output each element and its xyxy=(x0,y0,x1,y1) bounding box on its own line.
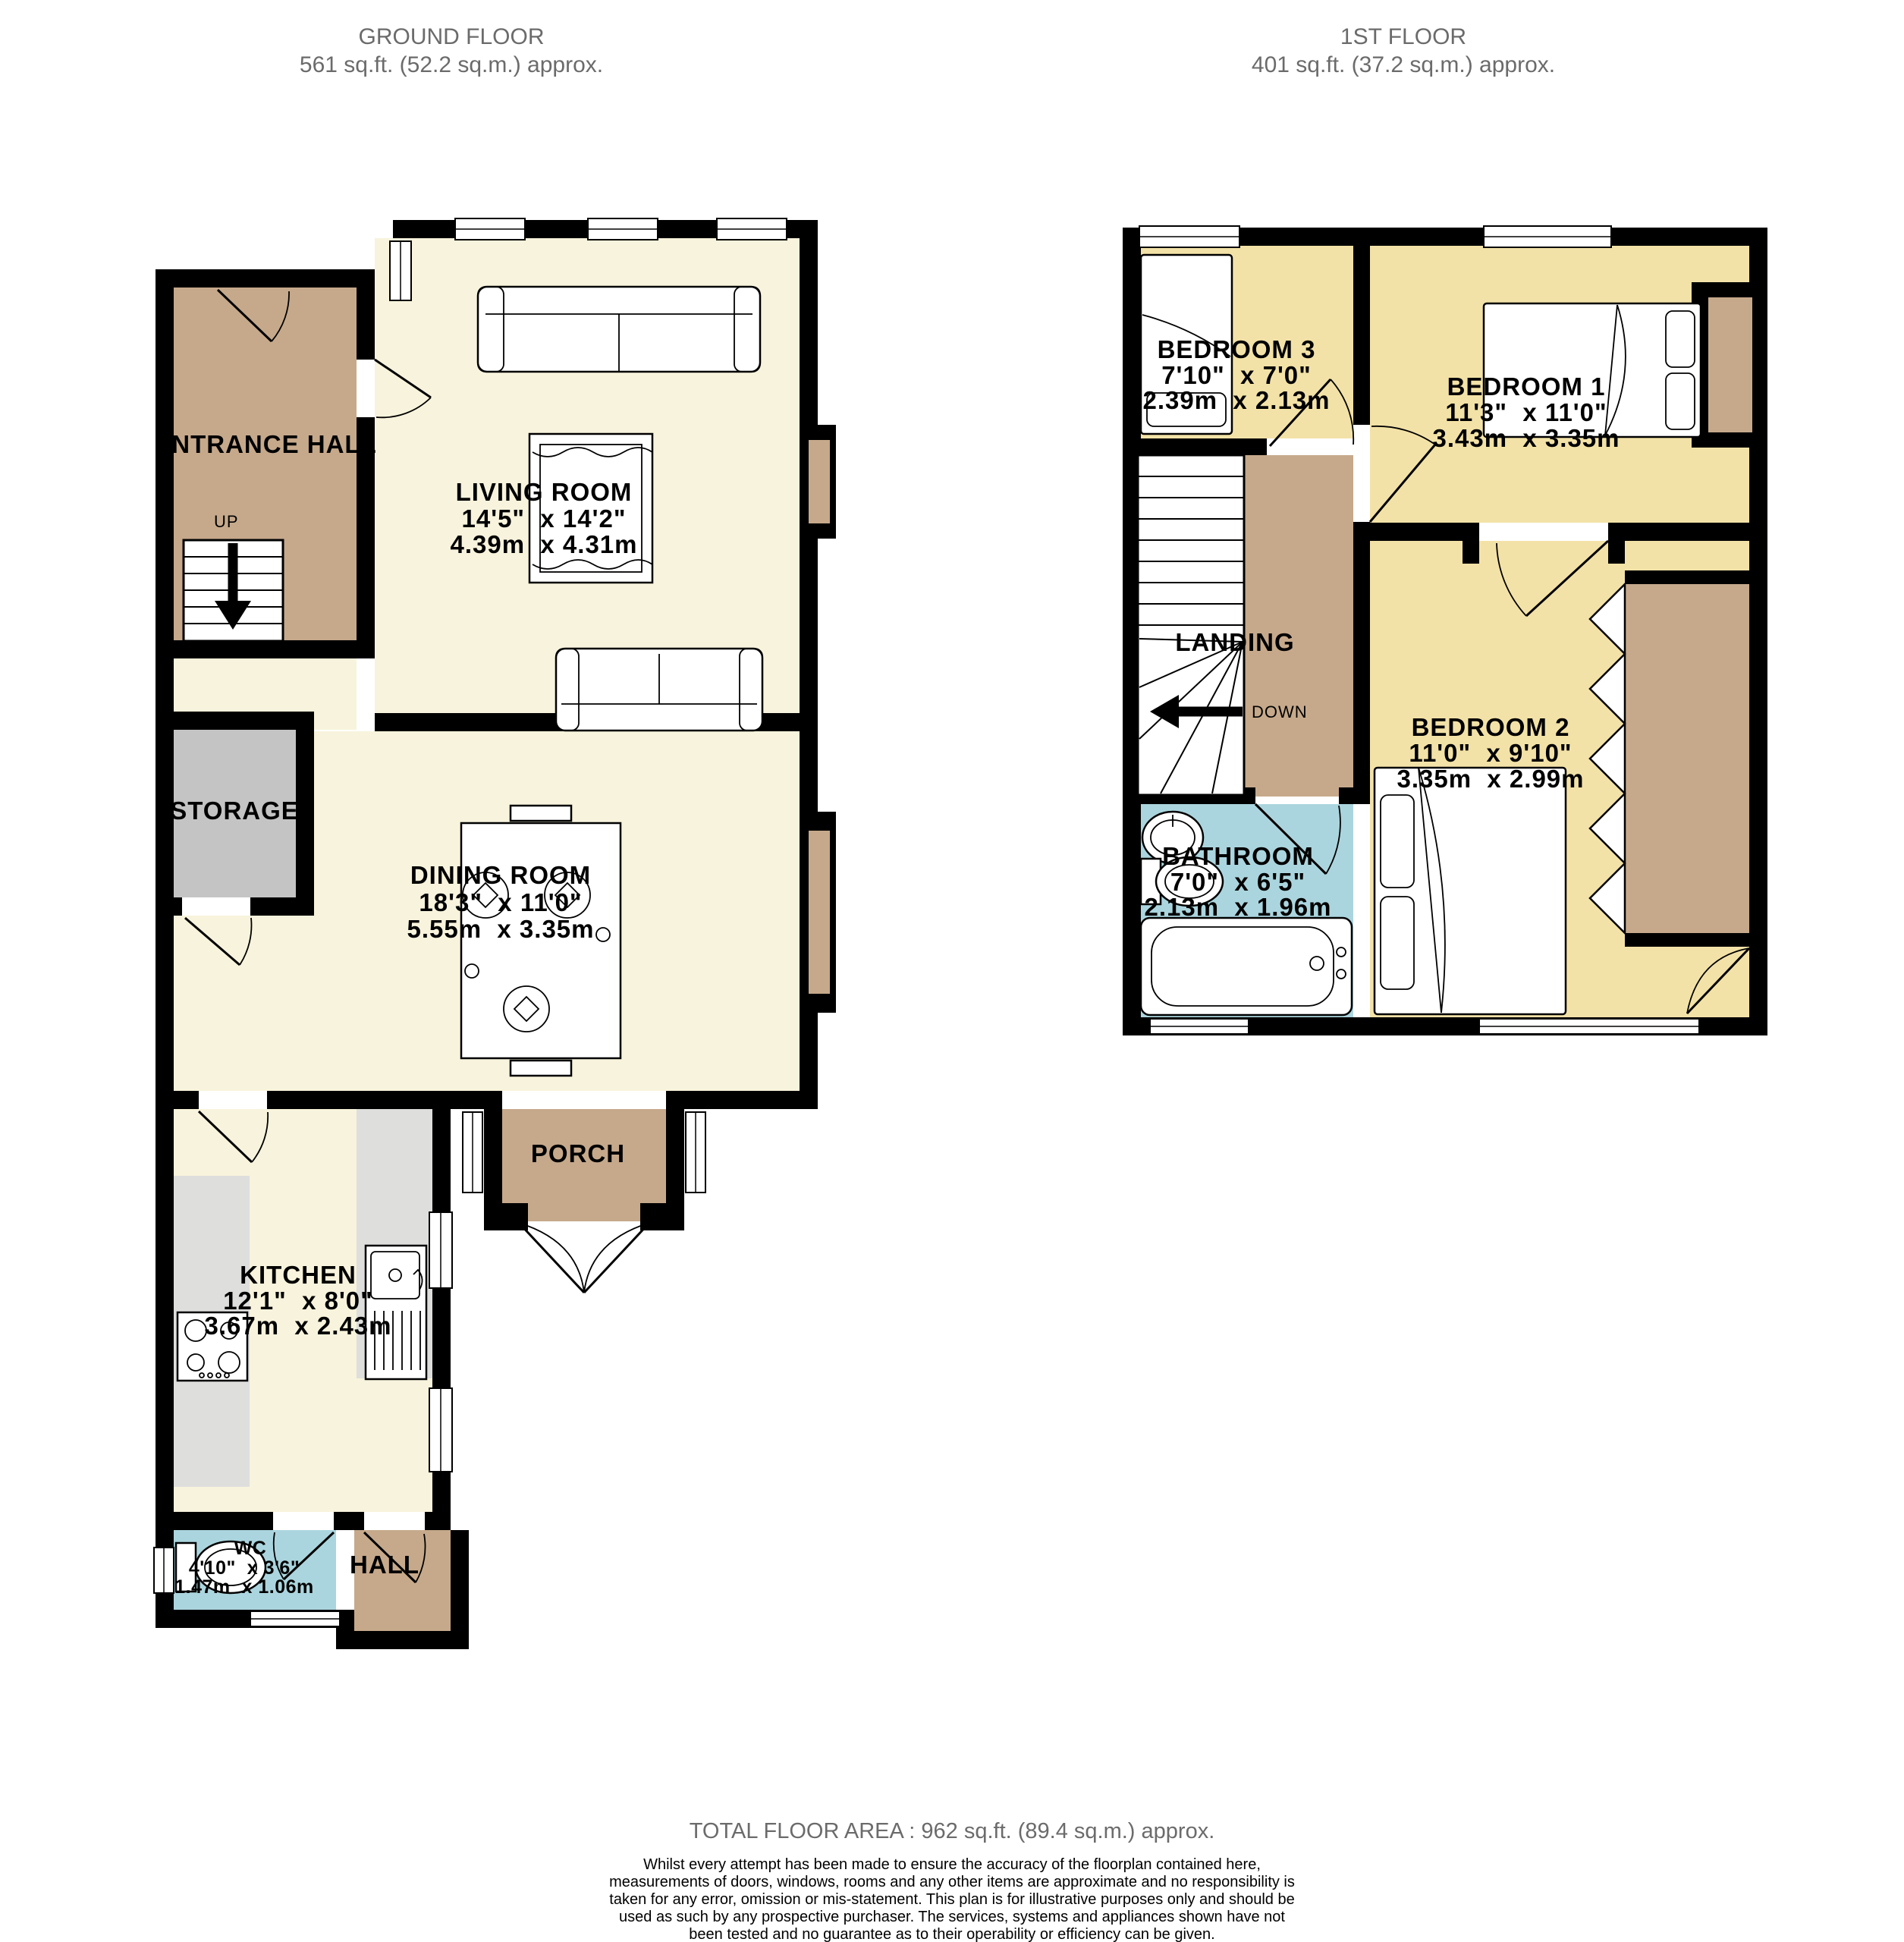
bedroom1-label: BEDROOM 1 xyxy=(1447,372,1606,401)
bedroom3-imperial: 7'10" x 7'0" xyxy=(1161,361,1312,389)
storage-label: STORAGE xyxy=(170,797,299,825)
disclaimer-text: Whilst every attempt has been made to en… xyxy=(609,1856,1296,1942)
bedroom1-builtin-cupboard xyxy=(1692,282,1767,448)
wc-imperial: 4'10" x 3'6" xyxy=(189,1557,300,1579)
first-floor-plan: BEDROOM 3 7'10" x 7'0" 2.39m x 2.13m BED… xyxy=(1123,226,1767,1035)
dining-room-imperial: 18'3" x 11'0" xyxy=(419,888,582,916)
bedroom2-label: BEDROOM 2 xyxy=(1412,713,1570,741)
first-stairs xyxy=(1138,455,1244,795)
bedroom1-imperial: 11'3" x 11'0" xyxy=(1445,398,1607,426)
dining-room-metric: 5.55m x 3.35m xyxy=(407,915,595,943)
bedroom1-metric: 3.43m x 3.35m xyxy=(1433,424,1620,452)
ground-floor-plan: ENTRANCE HALL UP LIVING ROOM 14'5" x 14'… xyxy=(154,218,836,1649)
bedroom2-bed-icon xyxy=(1375,768,1566,1014)
bathroom-metric: 2.13m x 1.96m xyxy=(1145,893,1332,921)
ground-stairs xyxy=(184,540,283,641)
dining-room-label: DINING ROOM xyxy=(410,861,591,889)
hall-floor xyxy=(354,1530,451,1631)
entrance-hall-label: ENTRANCE HALL xyxy=(154,430,376,458)
living-room-label: LIVING ROOM xyxy=(456,478,633,506)
porch-door-right xyxy=(584,1223,649,1293)
wc-metric: 1.47m x 1.06m xyxy=(174,1576,314,1598)
stairs-up-label: UP xyxy=(214,512,239,531)
floorplan-page: GROUND FLOOR 561 sq.ft. (52.2 sq.m.) app… xyxy=(0,0,1904,1942)
bedroom2-wardrobe xyxy=(1590,584,1749,933)
bedroom3-metric: 2.39m x 2.13m xyxy=(1143,386,1331,414)
bathroom-imperial: 7'0" x 6'5" xyxy=(1170,868,1305,896)
kitchen-label: KITCHEN xyxy=(240,1261,357,1289)
kitchen-imperial: 12'1" x 8'0" xyxy=(223,1287,373,1315)
bedroom2-metric: 3.35m x 2.99m xyxy=(1397,765,1585,793)
floorplan-drawing: ENTRANCE HALL UP LIVING ROOM 14'5" x 14'… xyxy=(0,0,1904,1942)
dining-room-floor-ext xyxy=(174,916,314,1091)
landing-down-label: DOWN xyxy=(1252,702,1308,721)
bedroom3-label: BEDROOM 3 xyxy=(1158,335,1316,363)
living-room-fireplace xyxy=(800,425,836,539)
bedroom2-imperial: 11'0" x 9'10" xyxy=(1409,739,1572,767)
landing-floor xyxy=(1244,455,1353,797)
porch-label: PORCH xyxy=(531,1139,625,1167)
landing-label: LANDING xyxy=(1175,628,1294,656)
dining-room-fireplace xyxy=(800,812,836,1013)
living-room-metric: 4.39m x 4.31m xyxy=(451,530,638,558)
sofa-icon-top xyxy=(478,287,760,372)
porch-door-left xyxy=(519,1223,584,1293)
bathroom-label: BATHROOM xyxy=(1162,842,1314,870)
kitchen-metric: 3.67m x 2.43m xyxy=(205,1312,392,1340)
footer: TOTAL FLOOR AREA : 962 sq.ft. (89.4 sq.m… xyxy=(0,1819,1904,1942)
wc-label: WC xyxy=(234,1538,267,1559)
bathroom-bathtub-icon xyxy=(1141,918,1352,1015)
living-room-imperial: 14'5" x 14'2" xyxy=(462,504,627,533)
hall-label: HALL xyxy=(350,1551,419,1579)
total-floor-area: TOTAL FLOOR AREA : 962 sq.ft. (89.4 sq.m… xyxy=(0,1819,1904,1844)
sofa-icon-bottom xyxy=(556,649,762,731)
